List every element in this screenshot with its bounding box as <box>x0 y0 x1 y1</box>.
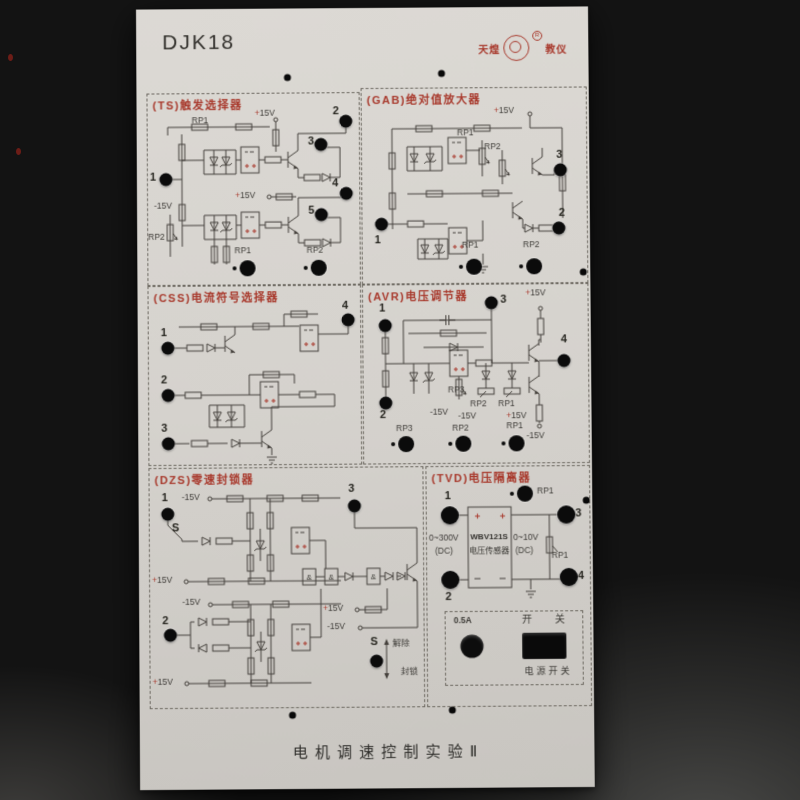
terminal-hole[interactable] <box>342 313 355 326</box>
terminal-number: 1 <box>379 303 385 314</box>
terminal-hole[interactable] <box>379 319 392 332</box>
pot-label: RP2 <box>523 240 540 249</box>
terminal-hole[interactable] <box>164 629 177 642</box>
voltage-label: +15V <box>506 411 526 420</box>
terminal-number: 3 <box>500 295 506 306</box>
terminal-number: 4 <box>578 571 584 582</box>
rp-label: RP2 <box>484 142 501 151</box>
terminal-hole[interactable] <box>554 163 567 176</box>
section-title: (DZS)零速封锁器 <box>154 471 254 488</box>
terminal-number: 3 <box>161 424 167 435</box>
section-title: (TVD)电压隔离器 <box>431 469 531 486</box>
section-title: (GAB)绝对值放大器 <box>367 91 481 108</box>
potentiometer-knob[interactable] <box>311 260 327 276</box>
terminal-number: 1 <box>161 328 167 339</box>
sensor-name-label: 电压传感器 <box>469 547 509 555</box>
terminal-number: 1 <box>375 235 381 246</box>
block-label: 封锁 <box>401 667 418 676</box>
terminal-number: 2 <box>162 616 168 627</box>
sensor-model-label: WBV121S <box>470 533 508 541</box>
terminal-hole[interactable] <box>161 508 174 521</box>
voltage-label: -15V <box>327 622 345 631</box>
terminal-hole[interactable] <box>339 115 352 128</box>
power-switch-label: 电源开关 <box>524 667 572 676</box>
rp-label: RP1 <box>192 116 209 125</box>
voltage-label: +15V <box>152 576 172 585</box>
brand-logo: 天煌 R 教仪 <box>478 31 567 66</box>
training-panel: DJK18 天煌 R 教仪 <box>136 6 595 790</box>
terminal-hole[interactable] <box>379 396 392 409</box>
voltage-label: -15V <box>458 411 476 420</box>
terminal-number: 4 <box>561 334 567 345</box>
terminal-number: 1 <box>150 173 156 184</box>
photo-artifact <box>8 54 13 61</box>
panel-footer-title: 电机调速控制实验Ⅱ <box>293 740 485 763</box>
pot-label: RP3 <box>396 424 413 433</box>
terminal-hole[interactable] <box>159 173 172 186</box>
terminal-hole[interactable] <box>161 342 174 355</box>
fuse-holder[interactable] <box>460 635 483 658</box>
voltage-label: +15V <box>525 288 545 297</box>
svg-text:&: & <box>307 573 313 582</box>
terminal-number: 3 <box>575 508 581 519</box>
terminal-number: 3 <box>556 150 562 161</box>
terminal-hole[interactable] <box>485 296 498 309</box>
terminal-hole[interactable] <box>162 389 175 402</box>
terminal-hole[interactable] <box>314 138 327 151</box>
pot-label: RP1 <box>506 421 523 430</box>
terminal-number: 2 <box>333 106 339 117</box>
gab-schematic <box>362 87 588 283</box>
terminal-number: 5 <box>308 206 314 217</box>
voltage-label: +15V <box>153 678 173 687</box>
terminal-number: 3 <box>308 136 314 147</box>
terminal-number: 2 <box>161 375 167 386</box>
section-title: (TS)触发选择器 <box>152 97 242 114</box>
section-avr: (AVR)电压调节器 +15V RP3 -15V RP2 -15V RP1 +1… <box>362 283 590 465</box>
potentiometer-knob[interactable] <box>455 436 471 452</box>
screw-hole <box>438 70 445 77</box>
voltage-label: -15V <box>182 598 200 607</box>
input-unit-label: (DC) <box>435 547 453 556</box>
terminal-number: 4 <box>342 301 348 312</box>
section-ts: (TS)触发选择器 RP1 +15V +15V -15V RP2 1 2 3 4… <box>146 92 360 286</box>
css-schematic <box>148 286 361 465</box>
potentiometer-knob[interactable] <box>398 436 414 452</box>
pot-label: RP2 <box>452 424 469 433</box>
terminal-hole[interactable] <box>552 221 565 234</box>
voltage-label: -15V <box>154 202 172 211</box>
potentiometer-knob[interactable] <box>517 486 533 502</box>
pot-label: RP1 <box>537 486 554 495</box>
fuse-rating-label: 0.5A <box>454 616 472 625</box>
switch-label: 开 关 <box>522 615 575 625</box>
power-switch[interactable] <box>522 633 566 660</box>
release-label: 解除 <box>393 639 410 648</box>
voltage-label: -15V <box>430 408 448 417</box>
rp-label: RP1 <box>498 399 515 408</box>
terminal-hole[interactable] <box>375 218 388 231</box>
output-unit-label: (DC) <box>515 546 533 555</box>
section-dzs: & & & (DZS)零速封锁器 1 -15V S +15V 2 -15V +1… <box>148 466 425 709</box>
potentiometer-knob[interactable] <box>240 260 256 276</box>
terminal-hole[interactable] <box>441 506 459 524</box>
terminal-number: 2 <box>559 208 565 219</box>
screw-hole <box>284 74 291 81</box>
terminal-number: 2 <box>380 410 386 421</box>
output-range-label: 0~10V <box>513 533 538 542</box>
terminal-number: 1 <box>445 491 451 502</box>
switch-label: S <box>370 637 377 648</box>
photo-artifact <box>16 148 21 155</box>
pot-label: RP1 <box>462 241 479 250</box>
voltage-label: +15V <box>255 109 275 118</box>
section-css: (CSS)电流符号选择器 1 2 3 4 <box>147 285 362 466</box>
terminal-number: 4 <box>332 178 338 189</box>
section-tvd: (TVD)电压隔离器 RP1 1 2 3 4 0~300V (DC) WBV12… <box>425 465 592 707</box>
panel-model-label: DJK18 <box>162 31 235 56</box>
rp-label: RP2 <box>148 233 165 242</box>
switch-label: S <box>172 523 179 534</box>
voltage-label: -15V <box>526 431 544 440</box>
pot-label: RP1 <box>552 551 569 560</box>
pot-label: RP2 <box>307 246 324 255</box>
rp-label: RP3 <box>448 385 465 394</box>
voltage-label: +15V <box>323 604 343 613</box>
terminal-hole[interactable] <box>557 505 575 523</box>
screw-hole <box>289 712 296 719</box>
voltage-label: +15V <box>494 106 514 115</box>
brand-left-text: 天煌 <box>478 41 500 56</box>
section-gab: (GAB)绝对值放大器 +15V RP1 RP2 1 2 3 RP1 RP2 <box>361 86 589 284</box>
potentiometer-knob[interactable] <box>508 435 524 451</box>
photo-scene: DJK18 天煌 R 教仪 <box>0 0 800 800</box>
terminal-hole[interactable] <box>315 208 328 221</box>
potentiometer-knob[interactable] <box>526 258 542 274</box>
terminal-number: 3 <box>348 484 354 495</box>
terminal-hole[interactable] <box>348 499 361 512</box>
svg-text:&: & <box>329 573 335 582</box>
registered-mark: R <box>532 31 542 41</box>
svg-text:&: & <box>371 572 377 581</box>
screw-hole <box>449 707 456 714</box>
pot-label: RP1 <box>234 246 251 255</box>
brand-emblem-icon <box>503 35 529 61</box>
voltage-label: +15V <box>235 191 255 200</box>
terminal-number: 2 <box>445 592 451 603</box>
brand-right-text: 教仪 <box>545 40 567 55</box>
lock-toggle-switch[interactable] <box>370 654 383 667</box>
terminal-number: 1 <box>162 493 168 504</box>
potentiometer-knob[interactable] <box>466 259 482 275</box>
voltage-label: -15V <box>182 493 200 502</box>
rp-label: RP2 <box>470 399 487 408</box>
avr-schematic <box>363 284 589 464</box>
terminal-hole[interactable] <box>162 437 175 450</box>
terminal-hole[interactable] <box>340 187 353 200</box>
terminal-hole[interactable] <box>557 354 570 367</box>
terminal-hole[interactable] <box>441 571 459 589</box>
terminal-hole[interactable] <box>560 568 578 586</box>
dzs-schematic: & & & <box>149 467 424 708</box>
rp-label: RP1 <box>457 128 474 137</box>
section-title: (CSS)电流符号选择器 <box>154 289 279 306</box>
input-range-label: 0~300V <box>429 533 459 542</box>
